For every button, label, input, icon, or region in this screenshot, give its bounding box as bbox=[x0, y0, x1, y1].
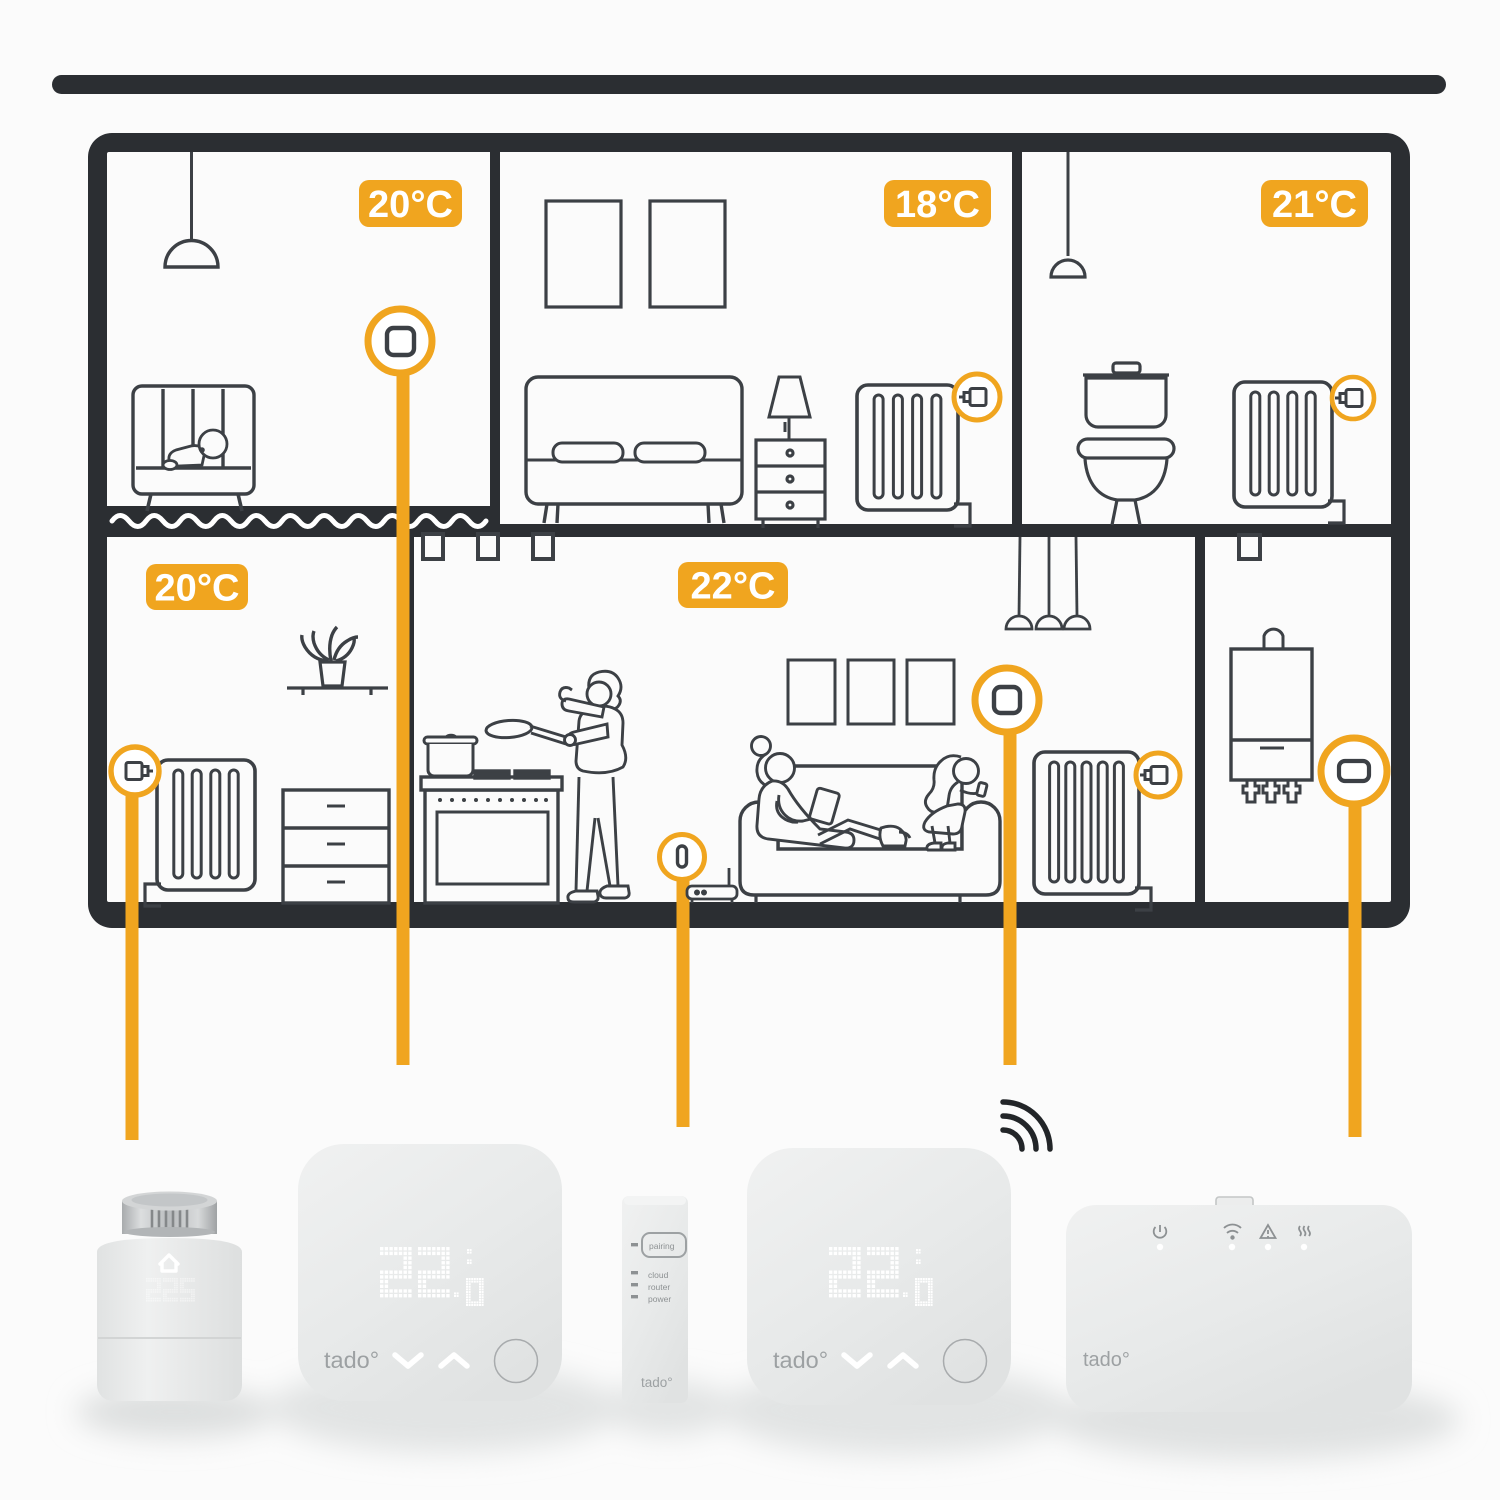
svg-text:tado°: tado° bbox=[1083, 1349, 1130, 1371]
svg-text:cloud: cloud bbox=[648, 1270, 669, 1280]
svg-text:22°C: 22°C bbox=[691, 566, 776, 608]
svg-text:power: power bbox=[648, 1294, 671, 1304]
svg-text:pairing: pairing bbox=[649, 1241, 675, 1251]
svg-text:18°C: 18°C bbox=[895, 184, 980, 226]
svg-text:tado°: tado° bbox=[641, 1375, 673, 1390]
svg-text:20°C: 20°C bbox=[155, 568, 240, 610]
svg-text:21°C: 21°C bbox=[1272, 184, 1357, 226]
svg-text:20°C: 20°C bbox=[368, 184, 453, 226]
svg-text:router: router bbox=[648, 1282, 670, 1292]
svg-text:tado°: tado° bbox=[324, 1347, 379, 1373]
svg-text:tado°: tado° bbox=[773, 1347, 828, 1373]
